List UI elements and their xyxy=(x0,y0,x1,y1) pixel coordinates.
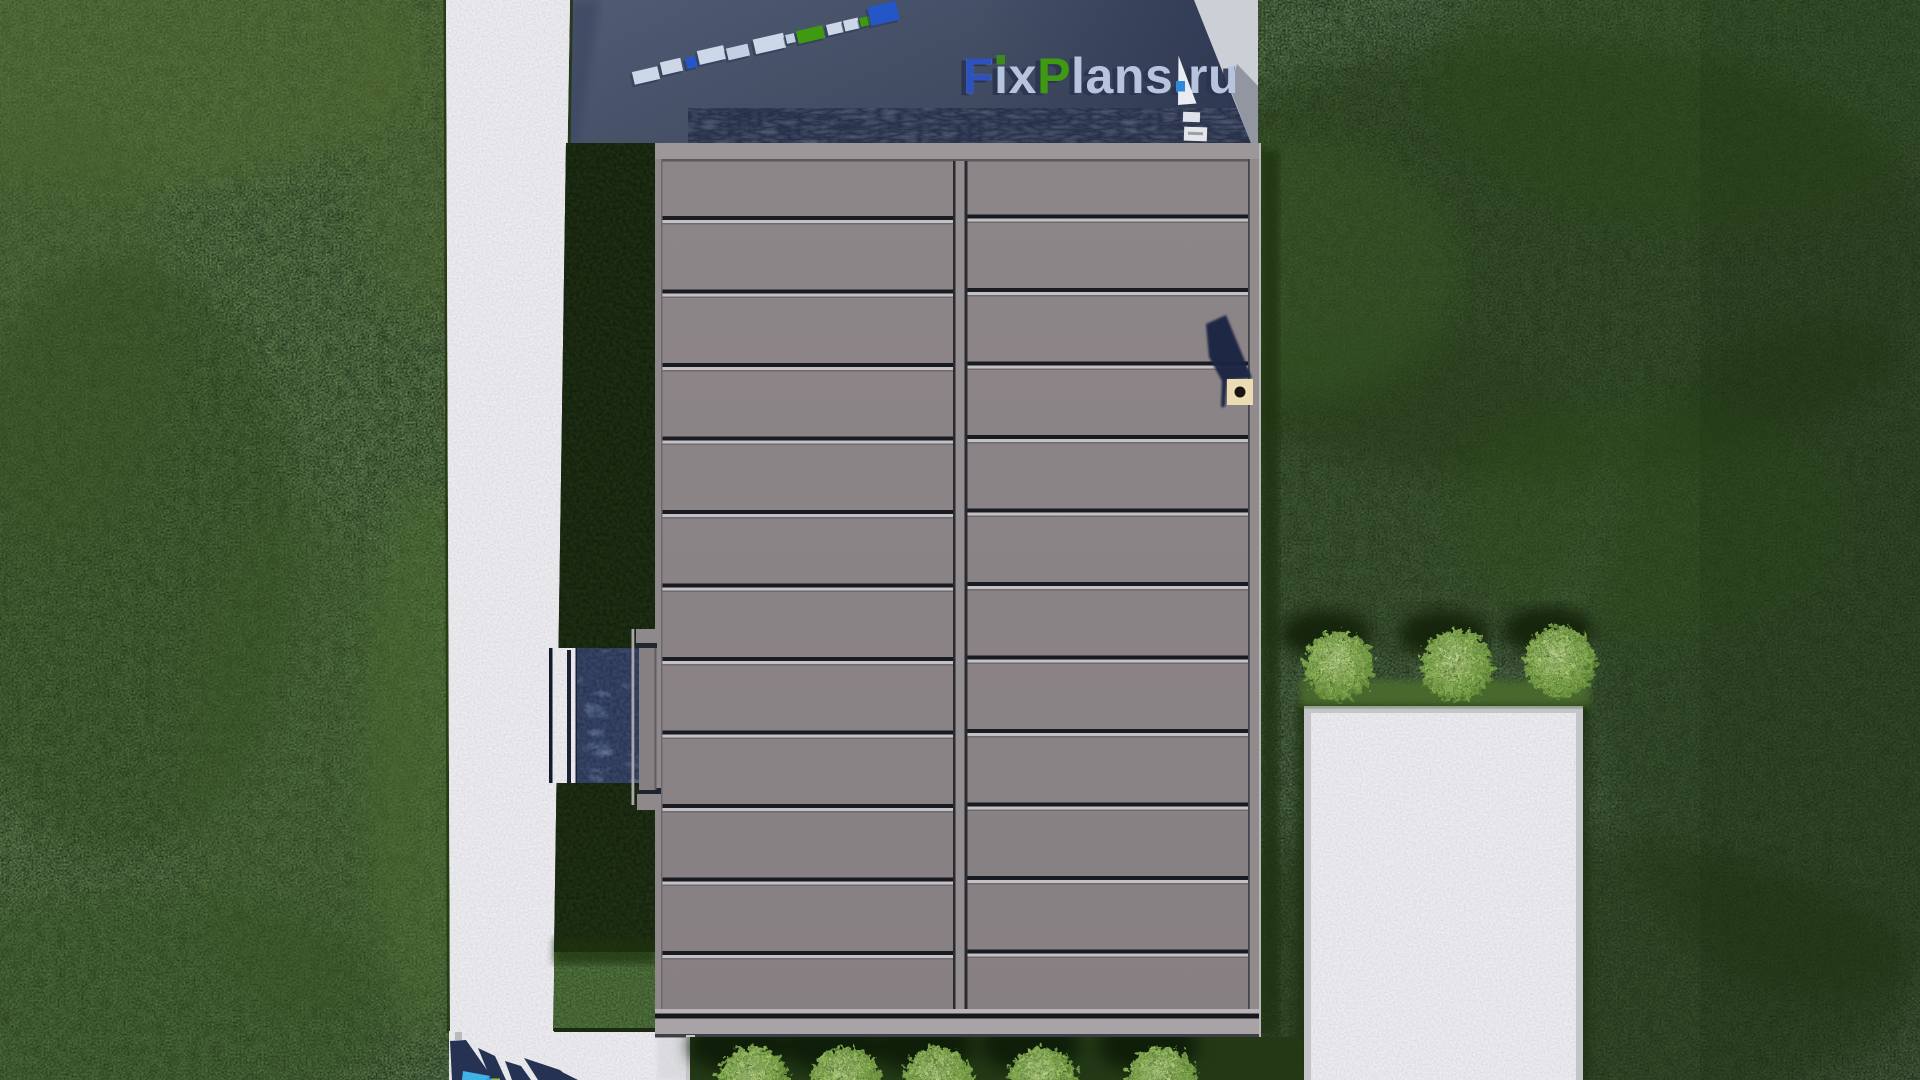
svg-text:F: F xyxy=(963,48,994,104)
